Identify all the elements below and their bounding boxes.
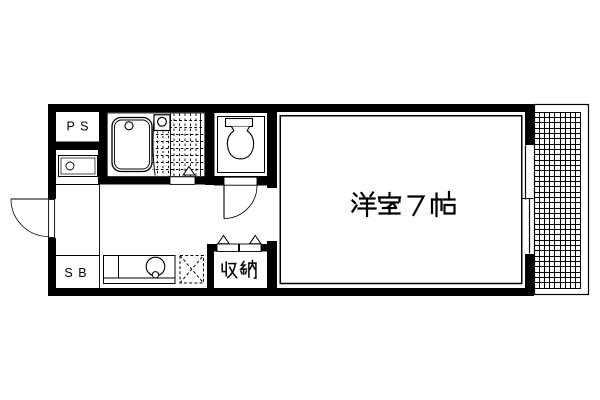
svg-text:S B: S B [64, 266, 87, 280]
svg-text:P S: P S [67, 120, 90, 134]
